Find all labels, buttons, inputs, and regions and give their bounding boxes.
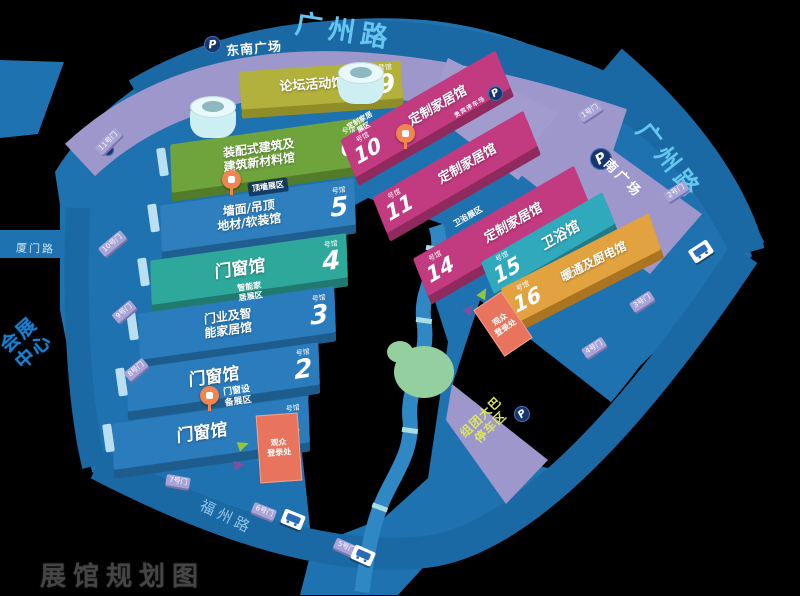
road-notch-topleft xyxy=(0,60,64,138)
hall-2-number: 号馆2 xyxy=(294,348,313,384)
location-pin[interactable] xyxy=(200,386,219,405)
route-arrow-purple xyxy=(233,459,246,471)
hall-5-number: 号馆5 xyxy=(330,186,349,222)
map-title-watermark: 展馆规划图 xyxy=(40,556,205,593)
location-pin[interactable] xyxy=(396,124,415,143)
hall-3-number: 号馆3 xyxy=(310,294,329,330)
zone-smart-home: 智能家居展区 xyxy=(237,280,263,302)
bus-icon xyxy=(284,512,303,527)
hall-4-number: 号馆4 xyxy=(322,240,341,276)
round-tower xyxy=(338,62,384,106)
road-label-left: 厦门路 xyxy=(16,241,55,256)
bus-icon xyxy=(354,548,373,564)
visitor-registration[interactable]: 观众登录处 xyxy=(256,413,303,484)
round-tower xyxy=(190,96,236,140)
location-pin[interactable] xyxy=(222,170,241,189)
venue-map: 广州路 广州路 厦门路 福州路 装配式建筑及建筑新材料馆 号馆6 墙面/吊顶地材… xyxy=(0,0,800,596)
zone-window-equipment: 门窗设备展区 xyxy=(223,384,253,409)
